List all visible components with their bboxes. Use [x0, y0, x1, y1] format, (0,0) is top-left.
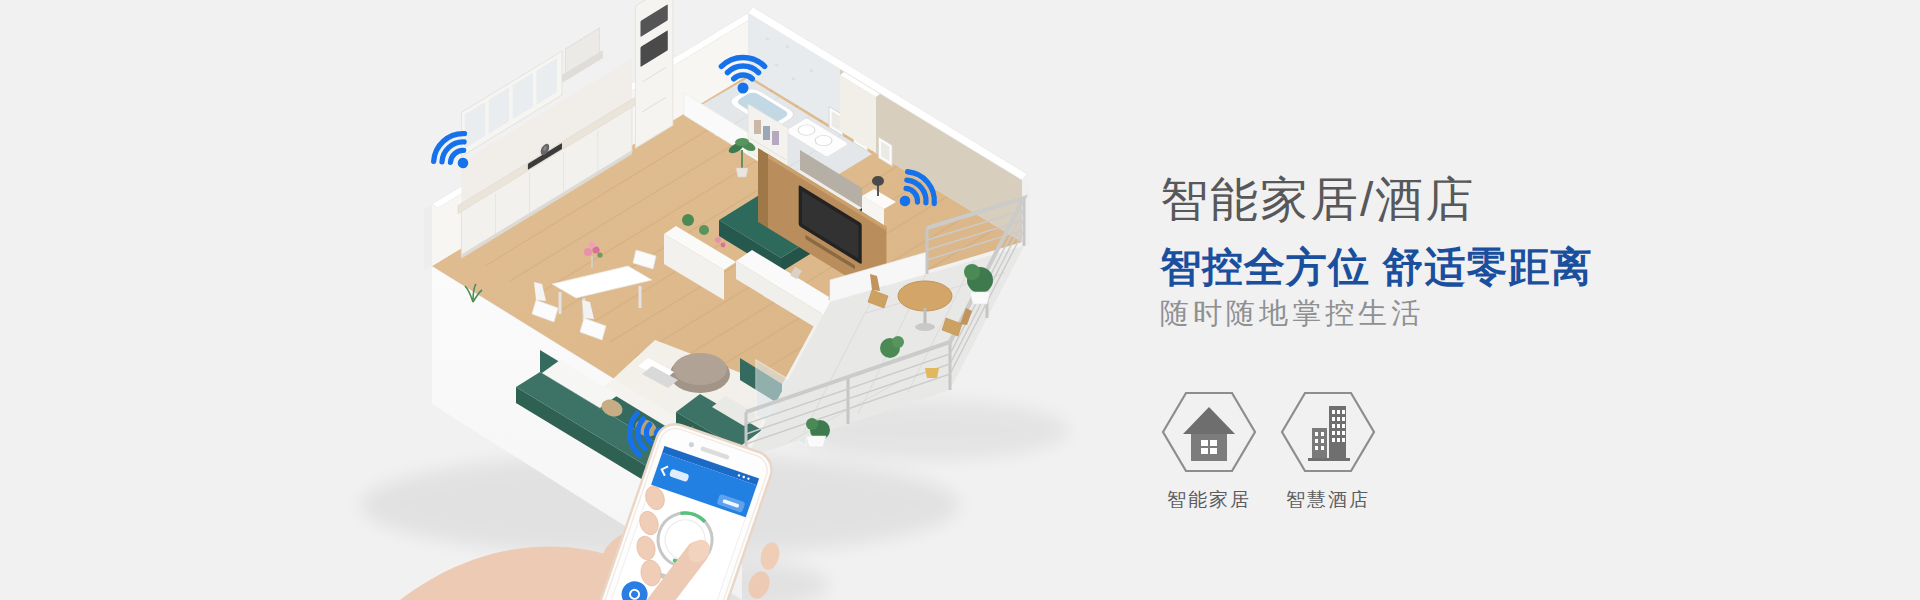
- apartment-illustration: [0, 0, 1920, 600]
- hero-banner: 智能家居/酒店 智控全方位 舒适零距离 随时随地掌控生活 智能家居 智慧酒店: [0, 0, 1920, 600]
- feature-smart-hotel[interactable]: 智慧酒店: [1273, 388, 1383, 513]
- home-icon: [1157, 388, 1261, 476]
- feature-smart-home[interactable]: 智能家居: [1154, 388, 1264, 513]
- hero-tagline: 随时随地掌控生活: [1160, 294, 1424, 334]
- hotel-icon: [1276, 388, 1380, 476]
- feature-smart-home-label: 智能家居: [1154, 487, 1264, 513]
- hero-title: 智能家居/酒店: [1160, 168, 1475, 232]
- hero-subtitle: 智控全方位 舒适零距离: [1160, 240, 1592, 295]
- feature-smart-hotel-label: 智慧酒店: [1273, 487, 1383, 513]
